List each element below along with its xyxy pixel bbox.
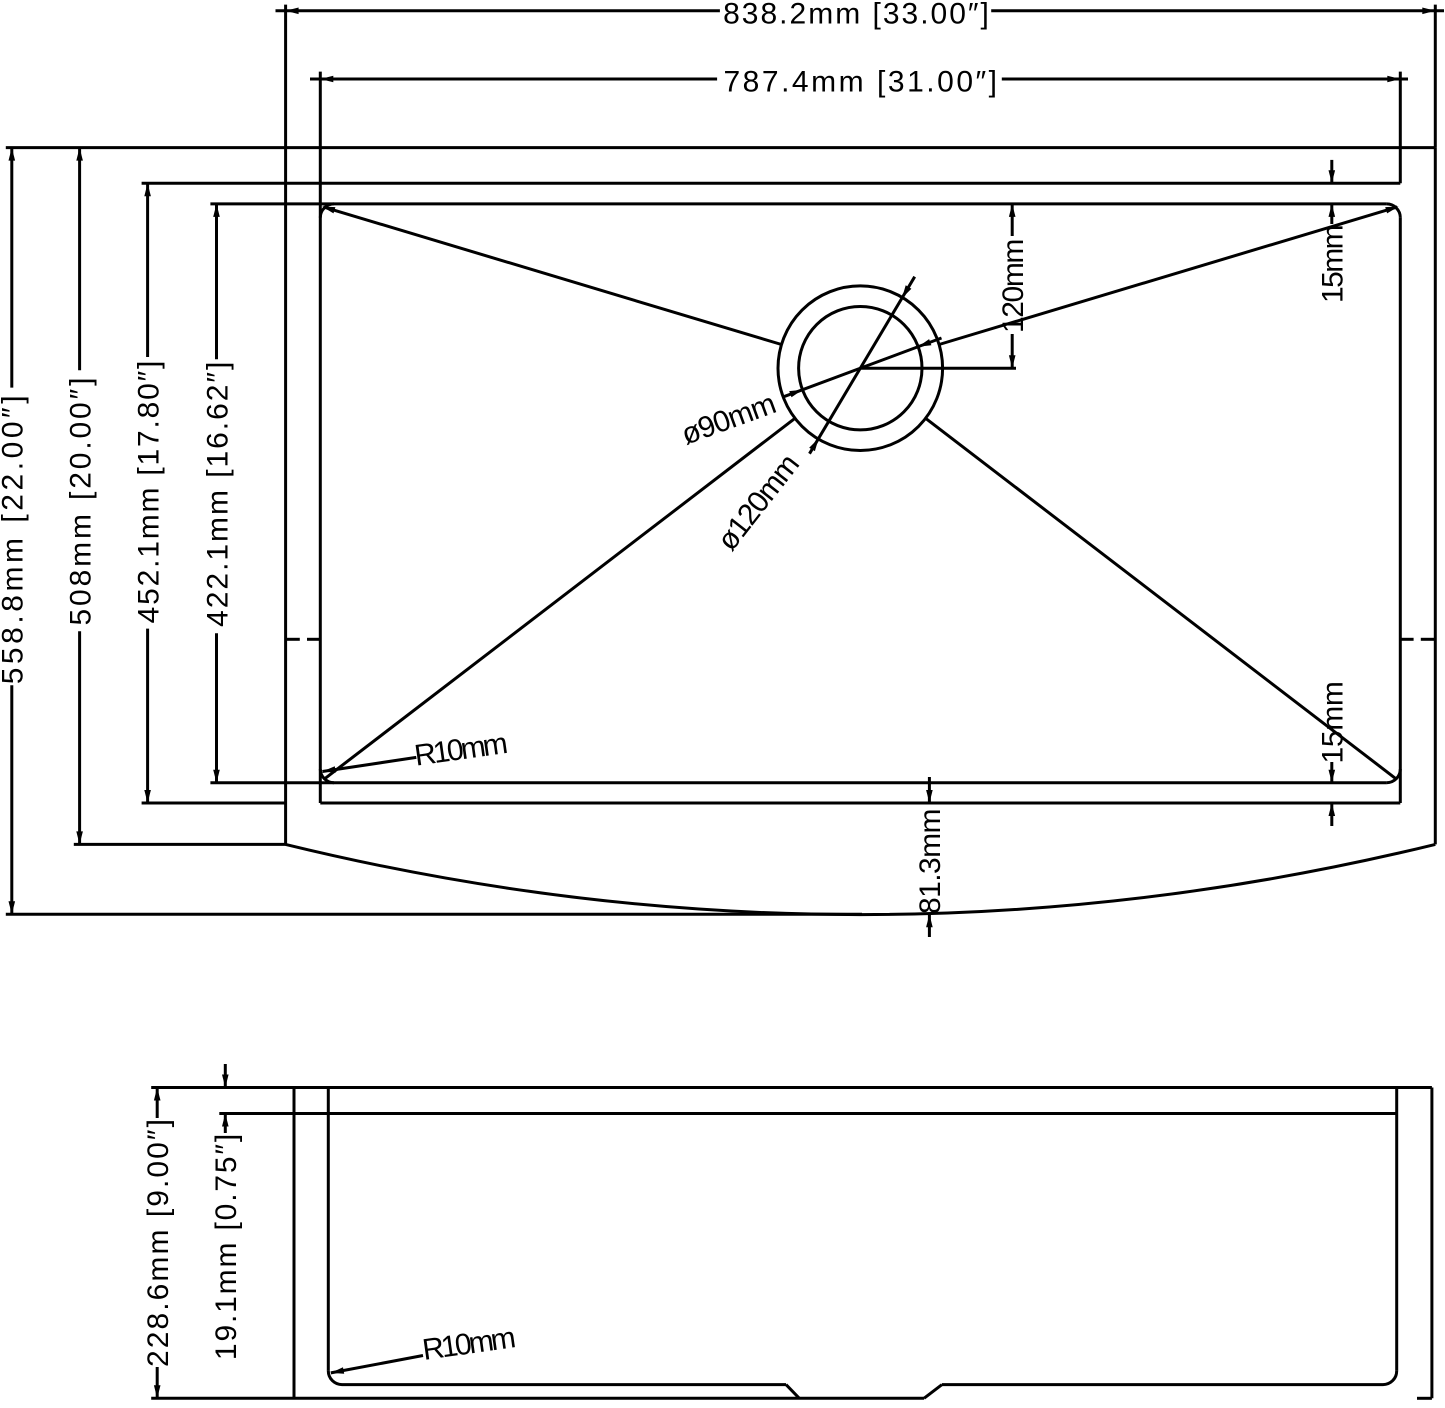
svg-text:508mm [20.00″]: 508mm [20.00″]	[64, 375, 97, 626]
svg-text:787.4mm [31.00″]: 787.4mm [31.00″]	[723, 66, 999, 99]
svg-text:120mm: 120mm	[997, 240, 1030, 333]
svg-text:228.6mm [9.00″]: 228.6mm [9.00″]	[142, 1117, 175, 1367]
svg-text:452.1mm [17.80″]: 452.1mm [17.80″]	[132, 359, 165, 624]
svg-text:R10mm: R10mm	[420, 1321, 517, 1367]
svg-text:15mm: 15mm	[1317, 682, 1350, 764]
svg-text:422.1mm [16.62″]: 422.1mm [16.62″]	[201, 360, 234, 627]
svg-text:ø120mm: ø120mm	[711, 449, 805, 557]
svg-text:15mm: 15mm	[1317, 225, 1350, 303]
svg-text:R10mm: R10mm	[412, 727, 509, 773]
svg-text:19.1mm [0.75″]: 19.1mm [0.75″]	[210, 1132, 243, 1360]
svg-text:81.3mm: 81.3mm	[914, 809, 947, 914]
svg-text:838.2mm [33.00″]: 838.2mm [33.00″]	[723, 0, 991, 30]
svg-text:558.8mm [22.00″]: 558.8mm [22.00″]	[0, 392, 30, 684]
